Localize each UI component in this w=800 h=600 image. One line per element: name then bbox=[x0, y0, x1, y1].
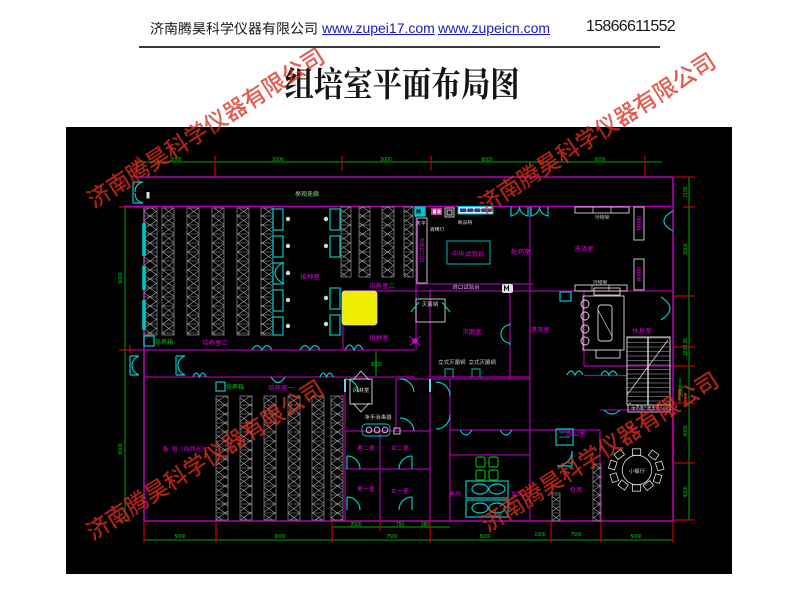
svg-text:380: 380 bbox=[421, 522, 430, 528]
svg-text:5000: 5000 bbox=[272, 157, 283, 163]
svg-text:5000: 5000 bbox=[630, 534, 641, 540]
svg-text:8000: 8000 bbox=[479, 534, 490, 540]
svg-text:8000: 8000 bbox=[481, 157, 492, 163]
svg-text:4000: 4000 bbox=[683, 425, 689, 436]
svg-text:6000: 6000 bbox=[683, 243, 689, 254]
svg-text:1500: 1500 bbox=[534, 532, 545, 538]
svg-text:5000: 5000 bbox=[380, 157, 391, 163]
svg-text:9000: 9000 bbox=[118, 443, 124, 454]
svg-text:750: 750 bbox=[396, 522, 405, 528]
svg-text:5000: 5000 bbox=[594, 157, 605, 163]
svg-text:5000: 5000 bbox=[174, 534, 185, 540]
svg-text:4000: 4000 bbox=[683, 486, 689, 497]
svg-text:7500: 7500 bbox=[570, 532, 581, 538]
svg-text:2500: 2500 bbox=[350, 522, 361, 528]
svg-text:9000: 9000 bbox=[274, 534, 285, 540]
svg-text:7500: 7500 bbox=[386, 534, 397, 540]
svg-text:9000: 9000 bbox=[118, 272, 124, 283]
svg-text:2100: 2100 bbox=[683, 186, 689, 197]
svg-text:1824.36: 1824.36 bbox=[683, 338, 689, 356]
